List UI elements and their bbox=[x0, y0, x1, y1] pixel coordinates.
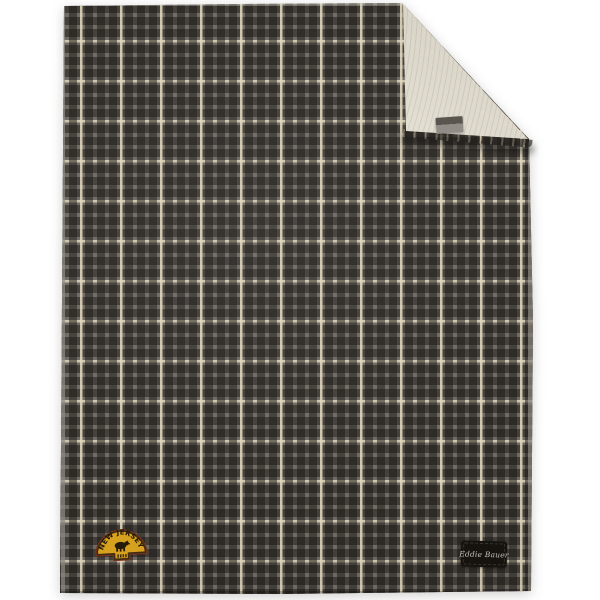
new-jersey-patch: NEW JERSEY bbox=[92, 527, 150, 564]
hem-top-edge bbox=[64, 3, 404, 6]
hem-left-edge bbox=[61, 5, 65, 593]
blanket-front-plaid bbox=[0, 0, 600, 600]
fold-edge-tag bbox=[435, 116, 463, 134]
product-photo: NEW JERSEY Eddie Bauer bbox=[0, 0, 600, 600]
lighting-overlay bbox=[0, 0, 600, 600]
blanket: NEW JERSEY Eddie Bauer bbox=[0, 0, 600, 600]
brand-label-text: Eddie Bauer bbox=[459, 549, 509, 559]
hem-bottom-edge bbox=[60, 591, 532, 594]
brand-label: Eddie Bauer bbox=[461, 540, 508, 567]
hem-right-edge bbox=[528, 142, 533, 592]
